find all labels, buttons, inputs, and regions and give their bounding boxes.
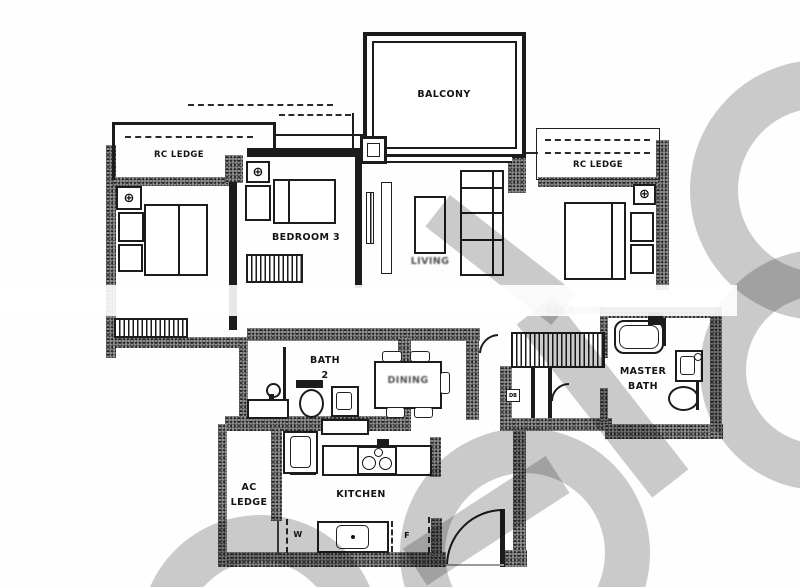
wall-segment [271,428,282,521]
bed [144,204,208,276]
ledge-outline [536,128,660,180]
dining-chair [440,372,450,394]
tv-console [381,182,392,274]
burner [374,448,383,457]
toilet-tank-line [696,382,699,410]
wardrobe [246,254,303,283]
toilet [668,386,699,411]
dashed-line [125,136,253,138]
nightstand [630,212,654,242]
balcony-label: BALCONY [404,89,484,101]
nightstand [630,244,654,274]
burner [362,456,376,470]
balcony-column-inner [367,143,380,157]
dashed-line [545,139,650,141]
ledge-outline [273,122,276,157]
dining-chair [414,407,433,418]
db-box: DB [506,389,520,402]
sliding-door [387,155,512,163]
door-swing-arc [479,334,499,354]
master-bath-label: MASTER [616,366,670,378]
wall-segment [352,113,354,151]
bath-door-threshold [321,419,369,435]
ceiling-fixture-icon: ⊕ [246,161,270,183]
wall-segment [247,148,363,157]
bed-line [178,206,180,274]
ledge-outline [112,122,276,125]
bathtub-inner [619,325,659,349]
dining-chair [382,351,402,362]
appliance-dash [391,521,393,552]
sofa-cushion-line [462,187,502,189]
wardrobe [114,318,188,338]
scan-artifact-band [0,285,737,316]
wall-segment [355,155,362,288]
ledge-outline [112,122,115,180]
dashed-line [545,152,650,154]
sink-drain [351,535,355,539]
toilet [299,389,324,418]
wall-segment [531,368,535,418]
burner [379,457,392,470]
bed [273,179,336,224]
bed [564,202,626,280]
floor-plan: RC LEDGE RC LEDGE BALCONY ⊕ ⊕ BEDROOM 3 … [0,0,800,587]
kitchen-label: KITCHEN [330,489,392,501]
bedroom3-label: BEDROOM 3 [268,232,344,244]
dashed-line [188,104,333,106]
shower-basin-inner [680,356,695,375]
dashed-line [279,114,351,116]
rc-ledge-right-label: RC LEDGE [546,159,650,171]
ac-ledge-label: AC [235,482,263,494]
wall-segment [113,177,230,186]
wall-segment [275,134,363,136]
bed-line [288,181,290,222]
hood [377,439,389,446]
ceiling-fixture-icon: ⊕ [633,184,656,205]
tv-console [366,192,374,244]
living-label: LIVING [405,256,455,268]
wall-segment [466,340,479,420]
nightstand [118,244,143,272]
dining-chair [386,407,405,418]
dining-chair [410,351,430,362]
bed-line [611,204,613,278]
shower-basin-inner [336,392,352,410]
bath2-label: BATH [306,355,344,367]
vanity-counter [247,399,289,419]
toilet-tank [296,380,323,388]
dining-label: DINING [386,375,430,387]
nightstand [118,212,144,242]
bed-pillow [245,185,271,221]
ac-ledge-label: LEDGE [226,497,272,509]
wall-segment [247,328,480,341]
kitchen-cabinet-inner [290,436,311,468]
cabinet-shelf-line [290,472,316,475]
ceiling-fixture-icon: ⊕ [116,186,142,210]
wall-segment [106,337,247,348]
dashed-line [526,152,538,154]
rc-ledge-left-label: RC LEDGE [125,149,233,161]
